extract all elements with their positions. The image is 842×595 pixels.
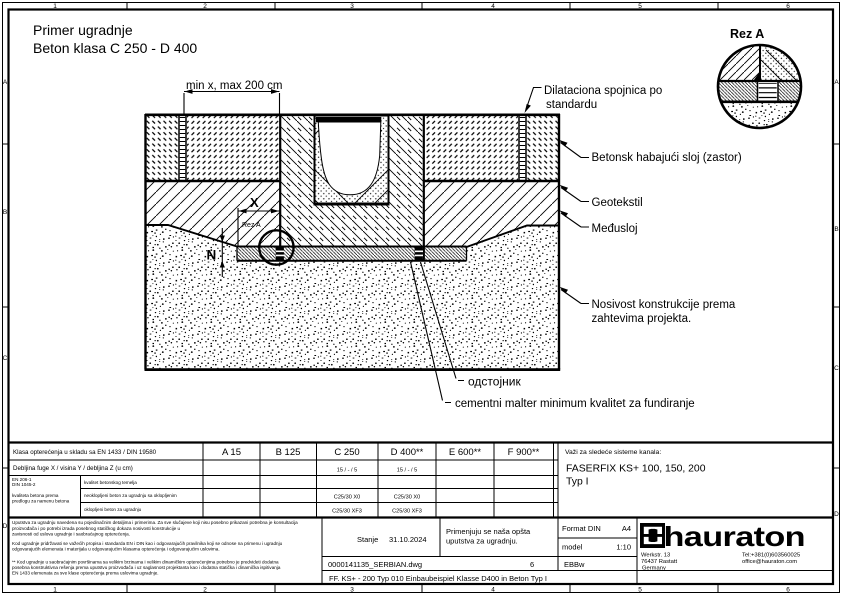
svg-text:Format DIN: Format DIN — [562, 524, 601, 533]
svg-text:min x, max 200 cm: min x, max 200 cm — [186, 80, 283, 92]
svg-text:B 125: B 125 — [276, 447, 301, 458]
svg-text:posebna konstruktivna rešenja: posebna konstruktivna rešenja prema uput… — [12, 565, 281, 570]
svg-text:5: 5 — [638, 3, 642, 10]
svg-text:neoklopljeni beton za ugradnju: neoklopljeni beton za ugradnju sa oklopl… — [84, 493, 177, 498]
svg-text:Primer ugradnje: Primer ugradnje — [33, 22, 133, 38]
svg-text:C25/30 X0: C25/30 X0 — [394, 495, 420, 501]
svg-text:1:10: 1:10 — [616, 543, 631, 552]
svg-text:X: X — [250, 195, 259, 210]
svg-text:5: 5 — [638, 587, 642, 594]
svg-text:standardu: standardu — [546, 99, 597, 111]
svg-text:0000141135_SERBIAN.dwg: 0000141135_SERBIAN.dwg — [328, 560, 422, 569]
svg-text:C25/30 XF3: C25/30 XF3 — [392, 509, 422, 515]
svg-text:C25/30 X0: C25/30 X0 — [334, 495, 360, 501]
svg-text:EN 1433 elemenata za sve klase: EN 1433 elemenata za sve klase opterećen… — [12, 571, 159, 576]
svg-text:EBBw: EBBw — [564, 560, 585, 569]
svg-text:4: 4 — [491, 587, 495, 594]
svg-text:6: 6 — [786, 587, 790, 594]
svg-text:FASERFIX KS+ 100, 150, 200: FASERFIX KS+ 100, 150, 200 — [566, 464, 706, 475]
svg-text:zavisnosti od uslova ugradnje: zavisnosti od uslova ugradnje i saobraća… — [12, 532, 130, 537]
svg-text:D: D — [3, 523, 8, 530]
svg-text:odgovarajućih elemenata i mate: odgovarajućih elemenata i materijala u o… — [12, 547, 220, 552]
svg-text:cementni malter minimum kvalit: cementni malter minimum kvalitet za fund… — [455, 398, 695, 410]
svg-text:office@hauraton.com: office@hauraton.com — [742, 559, 797, 565]
svg-text:Debljina fuge X / visina Y / d: Debljina fuge X / visina Y / debljina Z … — [13, 465, 133, 472]
svg-text:15 / - / 5: 15 / - / 5 — [337, 468, 358, 474]
svg-text:E 600**: E 600** — [449, 447, 482, 458]
svg-text:N: N — [207, 248, 217, 263]
svg-text:A4: A4 — [622, 524, 631, 533]
svg-text:Nosivost konstrukcije prema: Nosivost konstrukcije prema — [592, 299, 736, 311]
svg-text:** Kod ugradnje u saobraćajnim: ** Kod ugradnje u saobraćajnim površinam… — [12, 560, 279, 565]
svg-text:oklopljeni beton za ugradnju: oklopljeni beton za ugradnju — [84, 507, 142, 512]
svg-text:Germany: Germany — [642, 566, 666, 572]
svg-text:Werkstr. 13: Werkstr. 13 — [641, 553, 670, 559]
svg-text:Beton klasa C 250 - D 400: Beton klasa C 250 - D 400 — [33, 40, 197, 56]
svg-text:одстојник: одстојник — [468, 375, 521, 389]
svg-text:Rez A: Rez A — [242, 222, 261, 229]
svg-text:Uputstva za ugradnju navedena: Uputstva za ugradnju navedena su pojedin… — [12, 520, 298, 525]
svg-text:6: 6 — [786, 3, 790, 10]
svg-text:kvalitet betonskog temelja: kvalitet betonskog temelja — [84, 480, 137, 485]
svg-text:Geotekstil: Geotekstil — [592, 197, 643, 209]
svg-text:31.10.2024: 31.10.2024 — [389, 535, 427, 544]
svg-text:4: 4 — [491, 3, 495, 10]
svg-text:uputstva za ugradnju.: uputstva za ugradnju. — [446, 537, 518, 546]
svg-text:C: C — [3, 355, 8, 362]
svg-text:Važi za sledeće sisteme kanala: Važi za sledeće sisteme kanala: — [565, 449, 661, 456]
svg-text:C: C — [834, 365, 839, 372]
svg-text:model: model — [562, 543, 583, 552]
svg-text:hauraton: hauraton — [664, 521, 805, 552]
svg-text:1: 1 — [53, 3, 57, 10]
svg-text:Tel:+381(0)603560025: Tel:+381(0)603560025 — [742, 553, 800, 559]
svg-text:Stanje: Stanje — [357, 535, 378, 544]
svg-text:3: 3 — [350, 587, 354, 594]
svg-text:Dilataciona spojnica po: Dilataciona spojnica po — [544, 85, 662, 97]
svg-text:D 400**: D 400** — [391, 447, 424, 458]
svg-text:Betonsk habajući sloj (zastor): Betonsk habajući sloj (zastor) — [592, 152, 742, 164]
svg-text:FF. KS+ - 200 Typ 010 Einbaub: FF. KS+ - 200 Typ 010 Einbaubeispiel Kla… — [329, 574, 547, 583]
svg-text:predlogu za namenu betona: predlogu za namenu betona — [12, 499, 70, 504]
svg-text:Međusloj: Međusloj — [592, 223, 638, 235]
svg-text:3: 3 — [350, 3, 354, 10]
svg-text:6: 6 — [530, 560, 534, 569]
svg-text:Rez A: Rez A — [730, 27, 764, 41]
svg-text:DIN 1045-2: DIN 1045-2 — [12, 482, 36, 487]
svg-text:zahtevima projekta.: zahtevima projekta. — [592, 313, 692, 325]
svg-text:1: 1 — [53, 587, 57, 594]
svg-text:C25/30 XF3: C25/30 XF3 — [332, 509, 362, 515]
svg-text:proizvođača i po potrebi izrad: proizvođača i po potrebi izrada posebnog… — [12, 526, 180, 531]
svg-text:A: A — [834, 79, 839, 86]
svg-text:B: B — [3, 209, 7, 216]
svg-text:A 15: A 15 — [222, 447, 241, 458]
svg-text:B: B — [834, 226, 838, 233]
svg-text:F 900**: F 900** — [508, 447, 540, 458]
svg-text:C 250: C 250 — [334, 447, 359, 458]
svg-text:76437 Rastatt: 76437 Rastatt — [641, 559, 677, 565]
svg-text:Kod ugradnje pridržavati se va: Kod ugradnje pridržavati se važećih prop… — [12, 541, 283, 546]
svg-text:2: 2 — [203, 3, 207, 10]
svg-text:A: A — [3, 79, 8, 86]
svg-text:Klasa opterećenja u skladu sa: Klasa opterećenja u skladu sa EN 1433 / … — [13, 449, 157, 456]
svg-text:2: 2 — [203, 587, 207, 594]
svg-text:15 / - / 5: 15 / - / 5 — [397, 468, 418, 474]
svg-text:Typ I: Typ I — [566, 477, 589, 488]
svg-text:D: D — [834, 511, 839, 518]
svg-text:kvaliteta betona prema: kvaliteta betona prema — [12, 493, 59, 498]
svg-text:Primenjuju se naša opšta: Primenjuju se naša opšta — [446, 527, 531, 536]
